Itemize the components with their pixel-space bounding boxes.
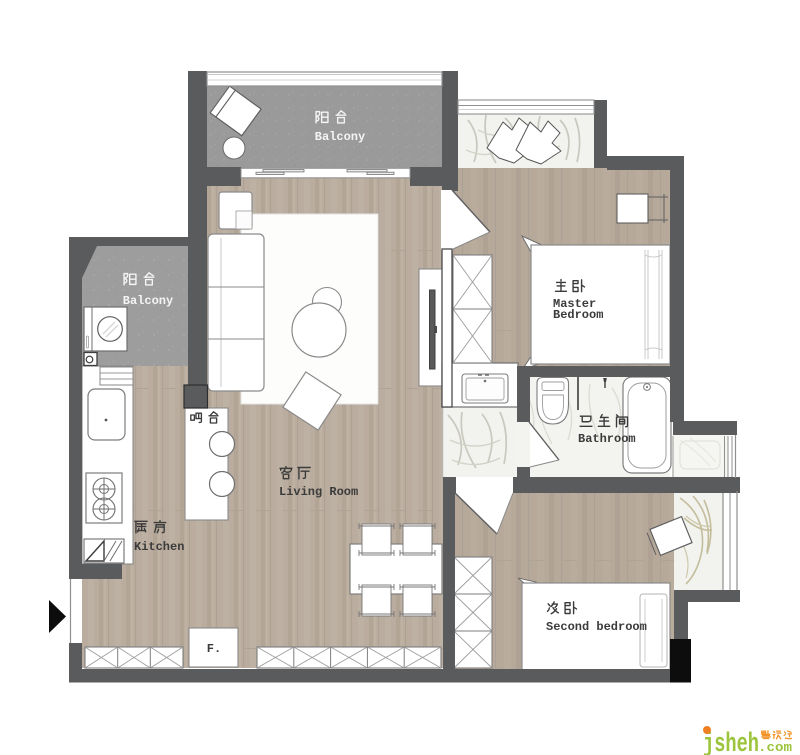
svg-text:jsheh: jsheh bbox=[703, 730, 759, 755]
svg-text:Bedroom: Bedroom bbox=[553, 308, 603, 322]
svg-text:Balcony: Balcony bbox=[315, 130, 365, 144]
svg-text:Bathroom: Bathroom bbox=[578, 432, 636, 446]
svg-text:.com: .com bbox=[758, 740, 792, 755]
svg-text:Kitchen: Kitchen bbox=[134, 540, 184, 554]
svg-text:Balcony: Balcony bbox=[123, 294, 173, 308]
svg-text:Living Room: Living Room bbox=[279, 485, 358, 499]
svg-text:F.: F. bbox=[207, 642, 221, 656]
svg-text:Second bedroom: Second bedroom bbox=[546, 620, 647, 634]
